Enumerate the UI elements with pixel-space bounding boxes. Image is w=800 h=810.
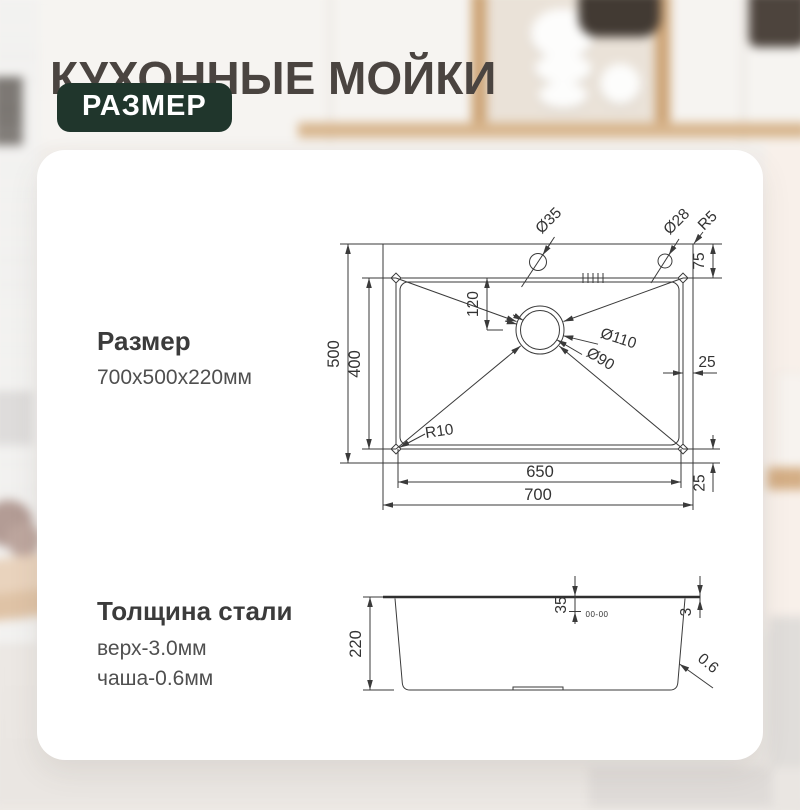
canister [775, 371, 800, 469]
dim-depth-220: 220 [347, 597, 394, 690]
stacked-bowls [535, 53, 592, 84]
dim-drain-diameters: Ø110 Ø90 [505, 315, 639, 374]
dim-label-d110: Ø110 [598, 325, 639, 353]
cabinet-wood-edge [298, 123, 800, 138]
dim-label-25-right: 25 [698, 354, 715, 371]
thickness-top: верх-3.0мм [97, 636, 292, 662]
stacked-bowls [539, 82, 588, 109]
dark-vase [579, 0, 661, 37]
dim-label-d90: Ø90 [583, 344, 617, 374]
side-view-drawing: 220 35 00-00 3 0.6 [330, 560, 740, 730]
dim-label-3: 3 [678, 608, 695, 617]
dim-label-700: 700 [524, 486, 552, 504]
fruit [6, 522, 41, 557]
dim-label-400: 400 [346, 350, 364, 378]
right-wood-shelf [767, 467, 800, 489]
thickness-bowl: чаша-0.6мм [97, 666, 292, 692]
dim-corner-r5: R5 [694, 208, 721, 244]
dim-deck-75: 75 [683, 244, 722, 278]
left-shelf [0, 392, 33, 445]
size-badge: РАЗМЕР [57, 83, 232, 132]
dim-label-25-bottom: 25 [692, 474, 709, 491]
dark-object [749, 0, 800, 47]
thickness-section: Толщина стали верх-3.0мм чаша-0.6мм [97, 596, 292, 693]
dim-label-d35: Ø35 [532, 204, 565, 237]
dim-height-400: 400 [346, 278, 396, 449]
dim-label-650: 650 [526, 463, 554, 481]
dim-drain-120: 120 [465, 278, 503, 330]
sink-profile [383, 597, 700, 690]
thickness-heading: Толщина стали [97, 596, 292, 627]
drain-circles [516, 306, 564, 354]
brand-mark: 00-00 [586, 610, 609, 619]
dim-label-r5: R5 [695, 208, 721, 234]
dim-label-r10: R10 [424, 421, 455, 442]
dim-corner-r10: R10 [400, 421, 456, 447]
dim-label-500: 500 [325, 340, 343, 368]
dim-label-06: 0.6 [694, 650, 721, 677]
small-bowl [600, 63, 641, 104]
dim-label-75: 75 [691, 252, 708, 269]
dim-ledge-35: 35 [553, 576, 581, 624]
faucet-holes [530, 254, 673, 271]
dim-label-120: 120 [465, 291, 482, 317]
size-section: Размер 700x500x220мм [97, 326, 252, 390]
dim-width-650: 650 [398, 449, 681, 488]
size-value: 700x500x220мм [97, 366, 252, 390]
spec-card: Размер 700x500x220мм Толщина стали верх-… [37, 150, 763, 760]
dim-deck-25-right: 25 [663, 354, 717, 373]
dim-wall-06: 0.6 [680, 650, 722, 688]
floor-shadow [589, 767, 773, 808]
top-view-drawing: Ø35 Ø28 R5 75 120 Ø1 [330, 195, 740, 525]
dim-label-d28: Ø28 [660, 205, 693, 238]
window-blinds-dark [0, 78, 23, 145]
dim-label-35: 35 [553, 596, 570, 613]
dim-label-220: 220 [347, 630, 365, 658]
cabinet-seam [742, 0, 745, 143]
dim-hole-faucet: Ø35 [522, 204, 566, 287]
size-heading: Размер [97, 326, 252, 357]
